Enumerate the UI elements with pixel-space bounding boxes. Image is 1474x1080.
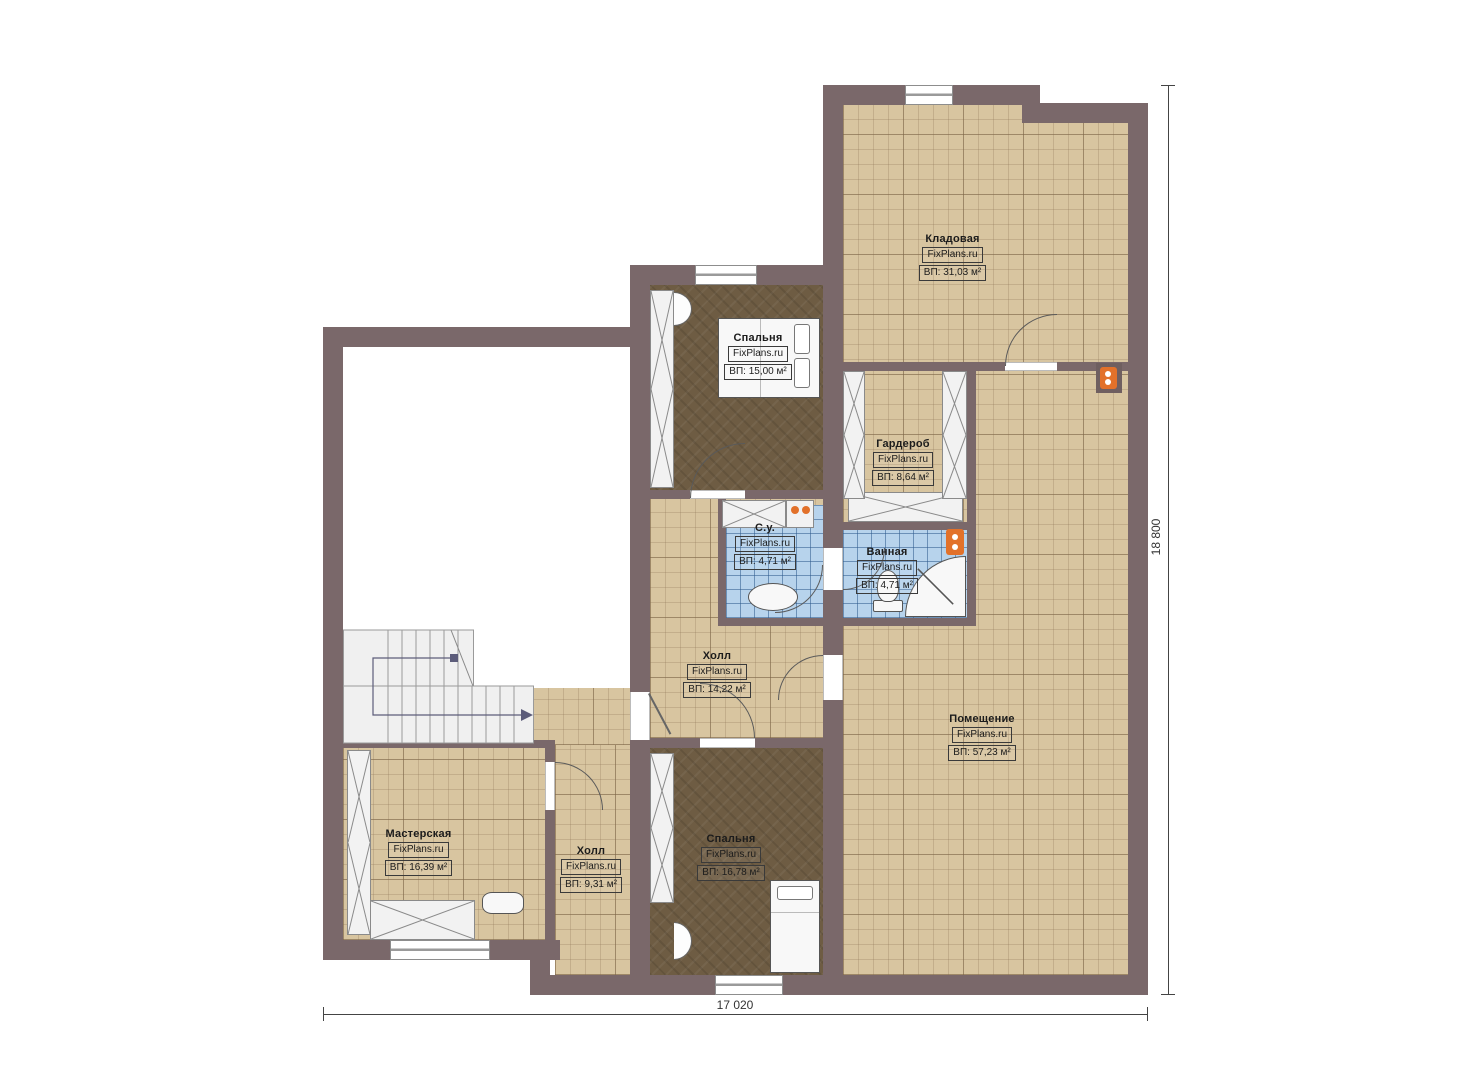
room-brand: FixPlans.ru	[701, 847, 761, 863]
closet	[650, 753, 674, 903]
wall-segment	[1128, 103, 1148, 995]
room-label-sanuzel: С.у. FixPlans.ru ВП: 4,71 м²	[715, 522, 815, 570]
room-brand: FixPlans.ru	[952, 727, 1012, 743]
room-name: Гардероб	[876, 438, 930, 450]
room-area: ВП: 14,22 м²	[683, 682, 750, 698]
window	[715, 975, 783, 995]
wall-segment	[823, 590, 843, 655]
closet	[650, 290, 674, 488]
room-label-spalnya-niz: Спальня FixPlans.ru ВП: 16,78 м²	[672, 833, 790, 881]
sink	[482, 892, 524, 914]
door-gap	[823, 655, 843, 700]
room-brand: FixPlans.ru	[728, 346, 788, 362]
room-name: Спальня	[707, 833, 756, 845]
dimension-tick	[323, 1007, 324, 1021]
room-area: ВП: 31,03 м²	[919, 265, 986, 281]
room-name: Кладовая	[925, 233, 979, 245]
room-name: Спальня	[734, 332, 783, 344]
room-brand: FixPlans.ru	[561, 859, 621, 875]
water-heater-icon	[946, 529, 964, 555]
room-label-masterskaya: Мастерская FixPlans.ru ВП: 16,39 м²	[356, 828, 481, 876]
room-label-holl-niz: Холл FixPlans.ru ВП: 9,31 м²	[546, 845, 636, 893]
room-area: ВП: 4,71 м²	[734, 554, 796, 570]
dimension-height-line	[1168, 85, 1169, 995]
wall-segment	[843, 362, 1005, 371]
room-name: Ванная	[866, 546, 907, 558]
room-area: ВП: 4,71 м²	[856, 578, 918, 594]
wall-segment	[967, 371, 976, 626]
sink	[748, 583, 798, 611]
room-area: ВП: 57,23 м²	[948, 745, 1015, 761]
room-brand: FixPlans.ru	[857, 560, 917, 576]
dimension-tick	[1147, 1007, 1148, 1021]
staircase	[343, 628, 628, 745]
room-brand: FixPlans.ru	[735, 536, 795, 552]
room-name: Мастерская	[386, 828, 452, 840]
wall-segment	[843, 618, 976, 626]
door-gap	[700, 738, 755, 748]
bed-fold-line	[771, 912, 819, 913]
dimension-height-label: 18 800	[1149, 507, 1163, 567]
room-label-vannaya: Ванная FixPlans.ru ВП: 4,71 м²	[835, 546, 939, 594]
room-brand: FixPlans.ru	[388, 842, 448, 858]
wall-segment	[530, 975, 650, 995]
room-name: Холл	[577, 845, 605, 857]
wall-segment	[650, 490, 690, 499]
wall-segment	[745, 490, 823, 499]
wall-segment	[323, 327, 648, 347]
room-label-spalnya-verh: Спальня FixPlans.ru ВП: 15,00 м²	[698, 332, 818, 380]
wall-segment	[650, 738, 700, 748]
room-area: ВП: 15,00 м²	[724, 364, 791, 380]
dimension-tick	[1161, 994, 1175, 995]
room-area: ВП: 16,39 м²	[385, 860, 452, 876]
room-label-pomeshchenie: Помещение FixPlans.ru ВП: 57,23 м²	[918, 713, 1046, 761]
room-brand: FixPlans.ru	[922, 247, 982, 263]
room-label-holl-verh: Холл FixPlans.ru ВП: 14,22 м²	[662, 650, 772, 698]
room-area: ВП: 16,78 м²	[697, 865, 764, 881]
dimension-width-line	[323, 1014, 1148, 1015]
pillow	[777, 886, 813, 900]
room-name: Холл	[703, 650, 731, 662]
window	[390, 940, 490, 960]
floor-plan: Кладовая FixPlans.ru ВП: 31,03 м² Спальн…	[0, 0, 1474, 1080]
wall-segment	[530, 940, 550, 975]
window	[905, 85, 953, 105]
room-label-kladovaya: Кладовая FixPlans.ru ВП: 31,03 м²	[890, 233, 1015, 281]
room-brand: FixPlans.ru	[873, 452, 933, 468]
wall-segment	[823, 85, 843, 548]
dimension-tick	[1161, 85, 1175, 86]
wall-segment	[718, 618, 823, 626]
room-brand: FixPlans.ru	[687, 664, 747, 680]
room-name: Помещение	[949, 713, 1014, 725]
door-gap	[545, 762, 555, 810]
wall-segment	[823, 975, 1148, 995]
room-area: ВП: 9,31 м²	[560, 877, 622, 893]
radiator-icon	[1100, 367, 1117, 389]
room-name: С.у.	[755, 522, 775, 534]
dimension-width-label: 17 020	[680, 998, 790, 1012]
wall-segment	[755, 738, 843, 748]
window	[695, 265, 757, 285]
closet	[370, 900, 475, 940]
room-label-garderob: Гардероб FixPlans.ru ВП: 8,64 м²	[847, 438, 959, 486]
room-area: ВП: 8,64 м²	[872, 470, 934, 486]
door-gap	[630, 692, 650, 740]
wall-segment	[323, 327, 343, 960]
